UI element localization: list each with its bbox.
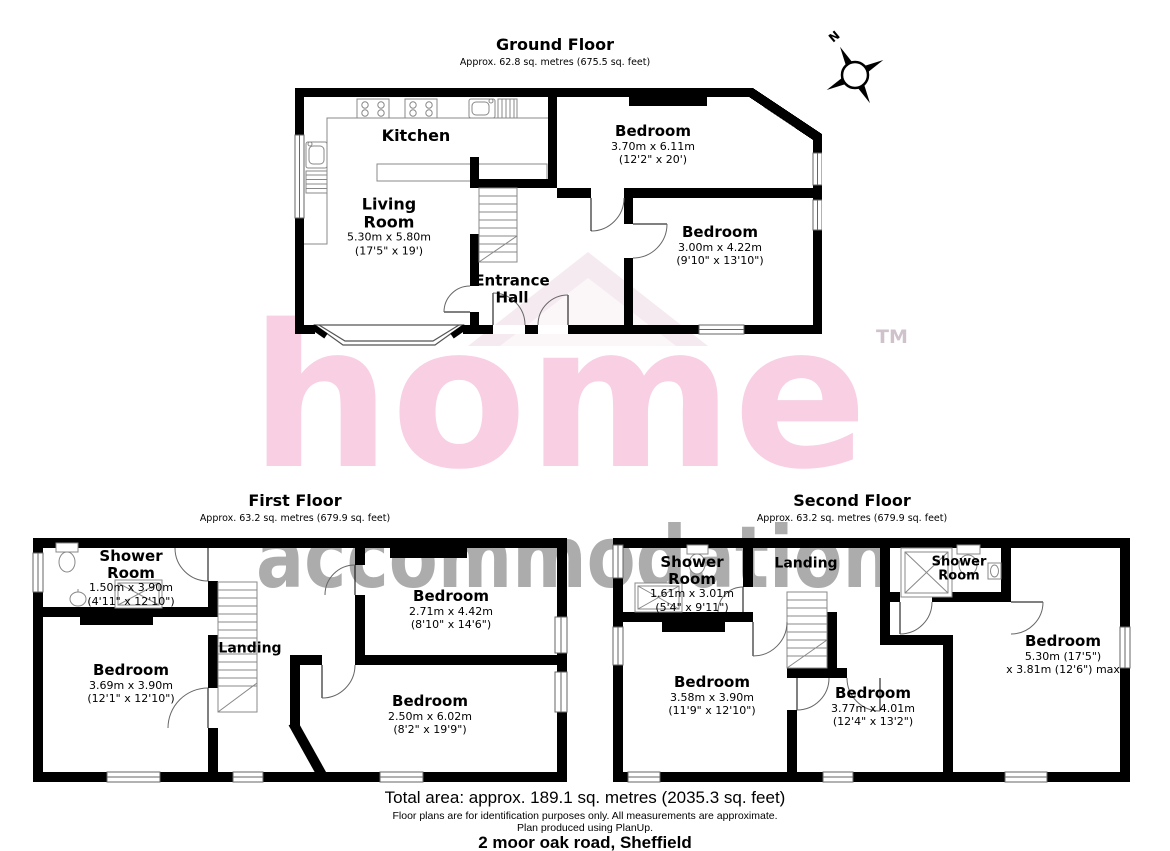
compass-icon: N bbox=[800, 25, 910, 120]
room-name: Entrance Hall bbox=[466, 273, 558, 306]
ff-angled-wall bbox=[293, 723, 322, 775]
room-name: Bedroom bbox=[615, 123, 691, 140]
room-dims-imperial: (17'5" x 19') bbox=[355, 245, 423, 259]
room-label-shower-room-sf-left: Shower Room 1.61m x 3.01m (5'4" x 9'11") bbox=[650, 554, 734, 615]
room-name: Landing bbox=[218, 641, 281, 656]
hob-icon bbox=[357, 99, 389, 118]
room-dims-metric: 5.30m x 5.80m bbox=[347, 231, 431, 245]
room-name: Shower Room bbox=[929, 556, 989, 585]
room-name: Shower Room bbox=[654, 554, 730, 587]
room-label-entrance-hall: Entrance Hall bbox=[466, 273, 558, 306]
kitchen-island bbox=[377, 164, 547, 181]
room-dims-imperial: (12'1" x 12'10") bbox=[87, 692, 174, 706]
room-label-shower-room-sf-right: Shower Room bbox=[929, 556, 989, 585]
basin-icon bbox=[70, 592, 86, 606]
room-dims-imperial: (5'4" x 9'11") bbox=[655, 601, 728, 615]
room-label-landing-ff: Landing bbox=[218, 641, 281, 656]
property-address: 2 moor oak road, Sheffield bbox=[0, 833, 1170, 851]
room-label-bedroom-2: Bedroom 3.00m x 4.22m (9'10" x 13'10") bbox=[676, 224, 763, 268]
toilet-icon bbox=[59, 552, 75, 572]
floor-subtitle-text: Approx. 63.2 sq. metres (679.9 sq. feet) bbox=[135, 513, 455, 524]
room-label-bedroom-6: Bedroom 3.58m x 3.90m (11'9" x 12'10") bbox=[668, 674, 755, 718]
floor-subtitle-text: Approx. 62.8 sq. metres (675.5 sq. feet) bbox=[395, 57, 715, 68]
toilet-cistern-icon bbox=[56, 543, 78, 552]
chimney-breast bbox=[662, 617, 725, 632]
room-dims-imperial: (11'9" x 12'10") bbox=[668, 704, 755, 718]
room-name: Bedroom bbox=[93, 662, 169, 679]
room-label-living-room: Living Room 5.30m x 5.80m (17'5" x 19') bbox=[347, 196, 431, 259]
ff-doors bbox=[168, 548, 355, 728]
drainer-icon bbox=[306, 171, 327, 193]
room-dims-metric: 3.77m x 4.01m bbox=[831, 702, 915, 716]
room-label-kitchen: Kitchen bbox=[382, 127, 451, 145]
room-dims-imperial: x 3.81m (12'6") max bbox=[1006, 663, 1120, 677]
compass-north-label: N bbox=[826, 28, 843, 45]
room-name: Living Room bbox=[354, 196, 424, 231]
room-dims-metric: 1.50m x 3.90m bbox=[89, 581, 173, 595]
room-label-shower-room-ff: Shower Room 1.50m x 3.90m (4'11" x 12'10… bbox=[87, 548, 174, 609]
room-dims-metric: 2.71m x 4.42m bbox=[409, 605, 493, 619]
room-label-bedroom-5: Bedroom 2.50m x 6.02m (8'2" x 19'9") bbox=[388, 693, 472, 737]
ground-floor-title: Ground Floor Approx. 62.8 sq. metres (67… bbox=[395, 36, 715, 68]
room-name: Bedroom bbox=[1025, 633, 1101, 650]
room-name: Landing bbox=[774, 556, 837, 571]
toilet-cistern-icon bbox=[957, 545, 980, 554]
watermark-tm-mark: TM bbox=[876, 326, 908, 348]
floor-title-text: First Floor bbox=[135, 492, 455, 510]
room-dims-metric: 3.70m x 6.11m bbox=[611, 140, 695, 154]
room-label-bedroom-3: Bedroom 3.69m x 3.90m (12'1" x 12'10") bbox=[87, 662, 174, 706]
room-label-bedroom-8: Bedroom 5.30m (17'5") x 3.81m (12'6") ma… bbox=[1006, 633, 1120, 677]
first-floor-title: First Floor Approx. 63.2 sq. metres (679… bbox=[135, 492, 455, 524]
room-dims-imperial: (8'2" x 19'9") bbox=[393, 723, 466, 737]
room-dims-metric: 3.69m x 3.90m bbox=[89, 679, 173, 693]
room-dims-metric: 2.50m x 6.02m bbox=[388, 710, 472, 724]
room-name: Bedroom bbox=[835, 685, 911, 702]
floor-title-text: Second Floor bbox=[692, 492, 1012, 510]
room-name: Bedroom bbox=[413, 588, 489, 605]
floorplan-page: home TM accommodation Ground Floor Appro… bbox=[0, 0, 1170, 851]
gf-stairs-icon bbox=[479, 188, 517, 262]
room-dims-imperial: (4'11" x 12'10") bbox=[87, 595, 174, 609]
room-dims-metric: 3.00m x 4.22m bbox=[678, 241, 762, 255]
chimney-breast bbox=[80, 610, 153, 625]
sf-stairs-icon bbox=[787, 592, 827, 668]
room-label-bedroom-4: Bedroom 2.71m x 4.42m (8'10" x 14'6") bbox=[409, 588, 493, 632]
disclaimer-text: Floor plans are for identification purpo… bbox=[0, 810, 1170, 822]
room-label-bedroom-7: Bedroom 3.77m x 4.01m (12'4" x 13'2") bbox=[831, 685, 915, 729]
room-dims-metric: 3.58m x 3.90m bbox=[670, 691, 754, 705]
room-dims-imperial: (12'2" x 20') bbox=[619, 153, 687, 167]
room-name: Bedroom bbox=[674, 674, 750, 691]
second-floor-title: Second Floor Approx. 63.2 sq. metres (67… bbox=[692, 492, 1012, 524]
room-dims-metric: 1.61m x 3.01m bbox=[650, 587, 734, 601]
room-dims-imperial: (9'10" x 13'10") bbox=[676, 254, 763, 268]
floor-subtitle-text: Approx. 63.2 sq. metres (679.9 sq. feet) bbox=[692, 513, 1012, 524]
room-label-landing-sf: Landing bbox=[774, 556, 837, 571]
room-name: Bedroom bbox=[392, 693, 468, 710]
chimney-breast bbox=[629, 88, 707, 106]
total-area-text: Total area: approx. 189.1 sq. metres (20… bbox=[0, 788, 1170, 808]
room-label-bedroom-1: Bedroom 3.70m x 6.11m (12'2" x 20') bbox=[611, 123, 695, 167]
room-name: Bedroom bbox=[682, 224, 758, 241]
chimney-breast bbox=[390, 538, 467, 558]
hob-icon bbox=[405, 99, 437, 118]
gf-bay-window bbox=[313, 325, 465, 345]
room-name: Shower Room bbox=[93, 548, 169, 581]
room-dims-metric: 5.30m (17'5") bbox=[1025, 650, 1101, 664]
floor-title-text: Ground Floor bbox=[395, 36, 715, 54]
room-name: Kitchen bbox=[382, 127, 451, 145]
compass-circle bbox=[842, 62, 868, 88]
room-dims-imperial: (8'10" x 14'6") bbox=[411, 618, 491, 632]
room-dims-imperial: (12'4" x 13'2") bbox=[833, 715, 913, 729]
